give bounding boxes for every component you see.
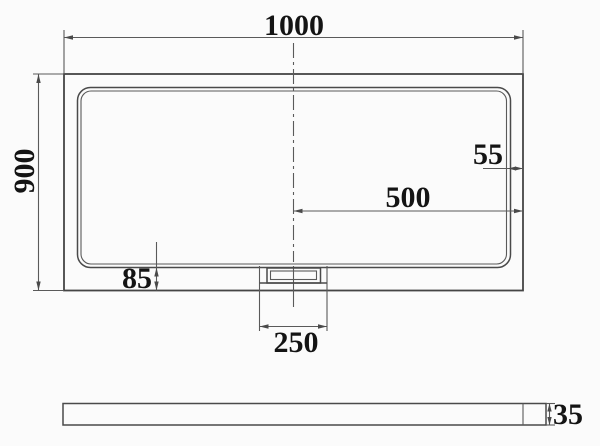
- dim-rim-right-label: 55: [473, 138, 503, 171]
- dim-center-to-edge-arrow-right: [514, 209, 523, 213]
- side-profile: [63, 404, 546, 426]
- dim-thickness-arrow-top: [547, 404, 551, 412]
- dim-thickness-label: 35: [553, 398, 583, 431]
- dim-drain-width-arrow-right: [318, 324, 327, 328]
- drawing-canvas: 1000 900 55: [0, 0, 600, 446]
- dim-center-to-edge: 500: [294, 181, 524, 214]
- dim-rim-bottom: 85: [122, 242, 159, 295]
- dim-drain-width-arrow-left: [260, 324, 269, 328]
- dim-width-arrow-left: [64, 35, 73, 39]
- dim-thickness: 35: [546, 398, 583, 431]
- dim-rim-bottom-arrow-bottom: [154, 282, 158, 291]
- plan-view: 1000 900 55: [8, 9, 523, 359]
- dim-rim-bottom-label: 85: [122, 262, 152, 295]
- dim-rim-right-arrow-right: [515, 167, 523, 171]
- dim-drain-width: 250: [260, 324, 328, 359]
- technical-drawing: 1000 900 55: [0, 0, 600, 446]
- dim-height-label: 900: [8, 149, 41, 194]
- dim-rim-right: 55: [473, 138, 523, 171]
- dim-width-arrow-right: [514, 35, 523, 39]
- dim-rim-right-arrow-left: [508, 167, 516, 171]
- dim-drain-width-label: 250: [274, 326, 319, 359]
- dim-height: 900: [8, 74, 63, 291]
- dim-thickness-arrow-bottom: [547, 417, 551, 425]
- dim-height-arrow-bottom: [36, 282, 40, 291]
- side-view: 35: [63, 398, 583, 431]
- dim-center-to-edge-label: 500: [386, 181, 431, 214]
- dim-center-to-edge-arrow-left: [294, 209, 303, 213]
- dim-width-label: 1000: [264, 9, 324, 42]
- dim-rim-bottom-arrow-top: [154, 268, 158, 277]
- dim-height-arrow-top: [36, 74, 40, 83]
